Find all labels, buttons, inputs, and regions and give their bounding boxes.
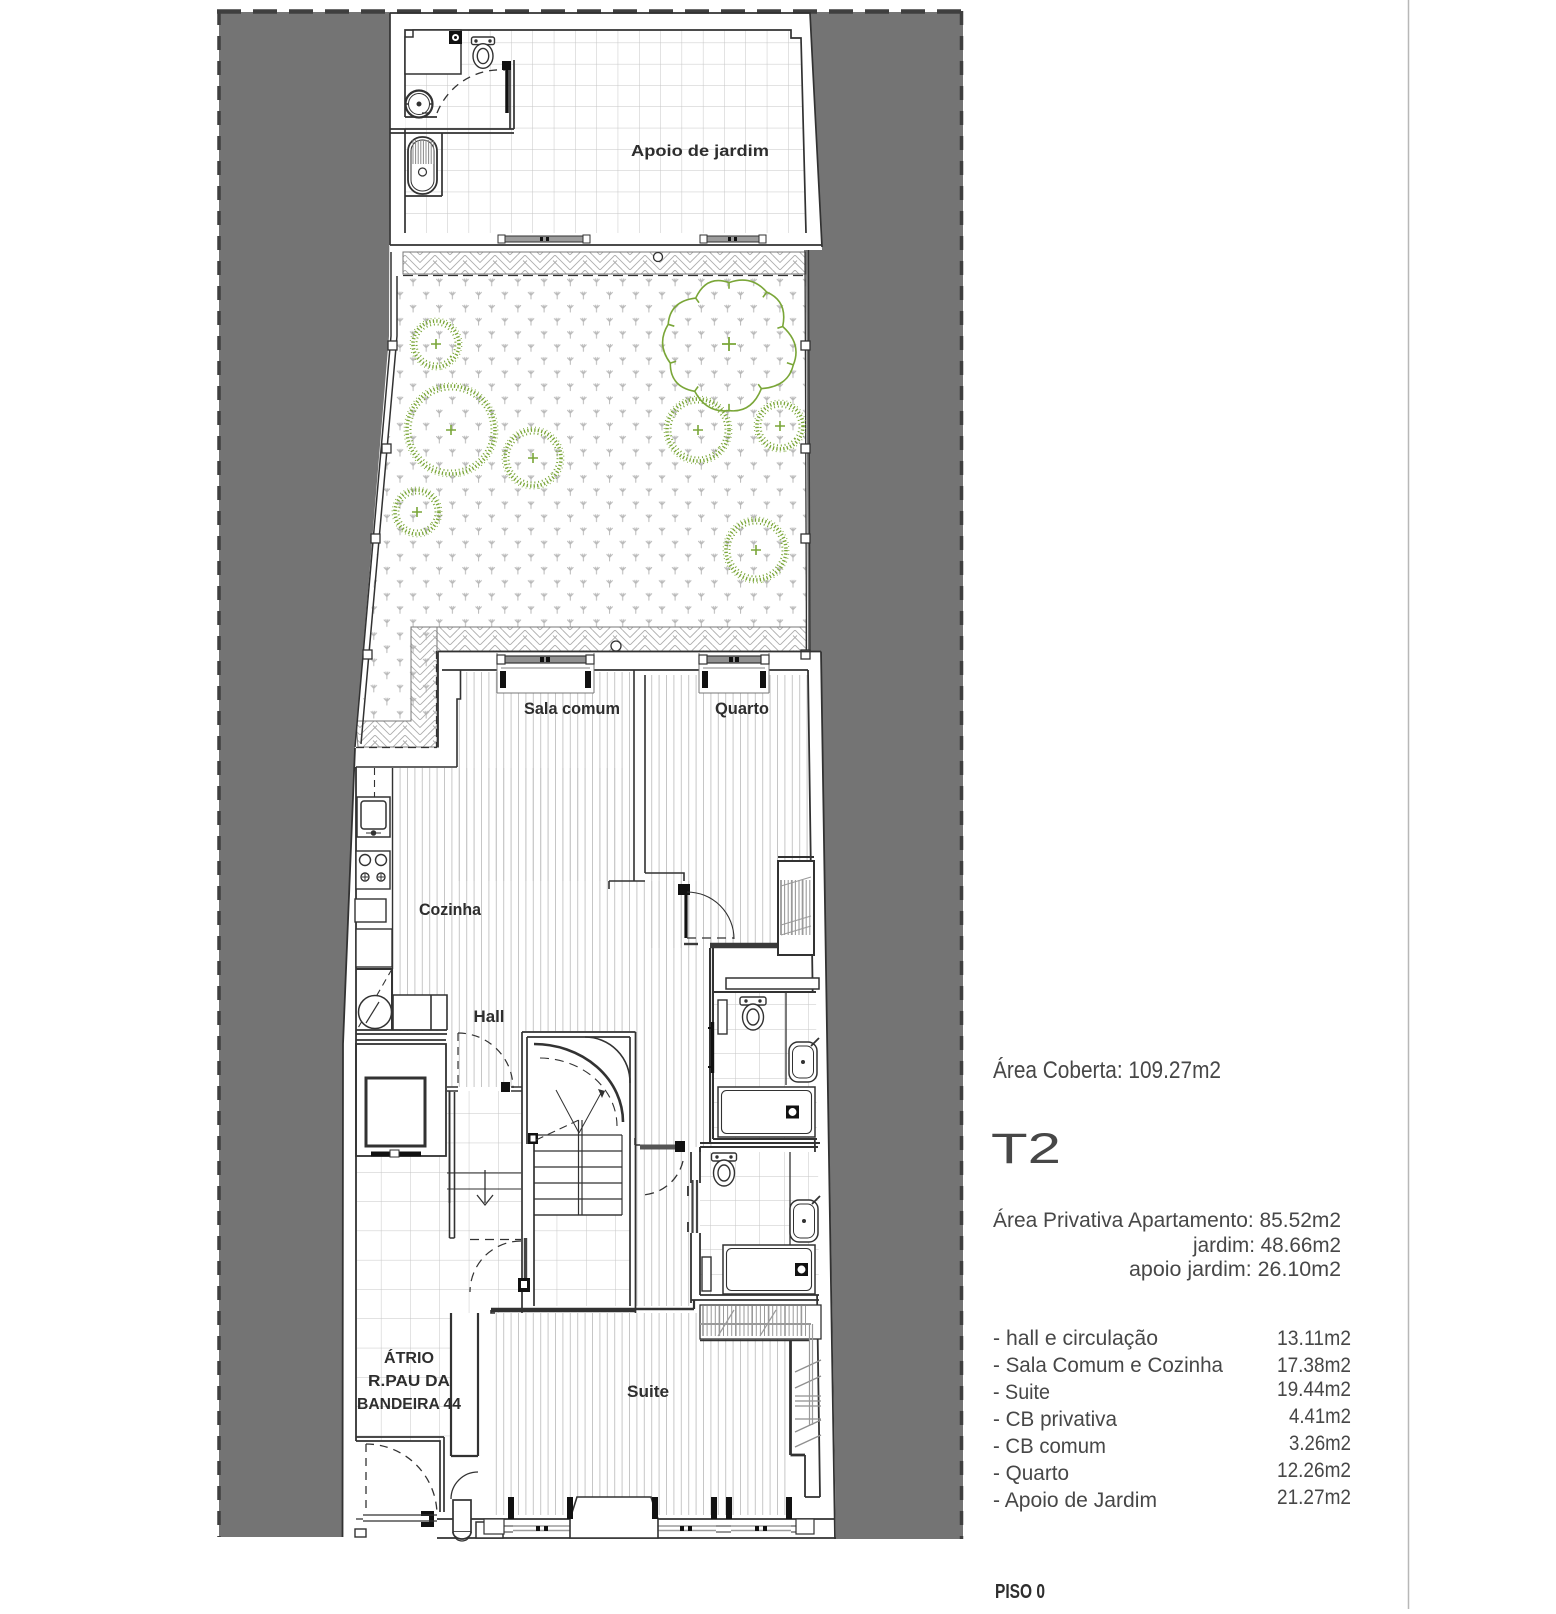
svg-text:19.44m2: 19.44m2 (1277, 1378, 1351, 1401)
svg-text:ÁTRIO: ÁTRIO (384, 1350, 434, 1367)
svg-text:- Apoio de Jardim: - Apoio de Jardim (993, 1489, 1157, 1512)
svg-text:Cozinha: Cozinha (419, 901, 482, 919)
svg-text:Hall: Hall (474, 1008, 505, 1026)
svg-text:- CB privativa: - CB privativa (993, 1408, 1117, 1431)
svg-text:BANDEIRA 44: BANDEIRA 44 (357, 1396, 461, 1413)
svg-text:apoio jardim: 26.10m2: apoio jardim: 26.10m2 (1129, 1258, 1341, 1281)
svg-text:- Suite: - Suite (993, 1381, 1050, 1404)
svg-text:Suite: Suite (627, 1383, 669, 1401)
svg-text:T2: T2 (991, 1125, 1061, 1173)
svg-text:Quarto: Quarto (715, 700, 769, 718)
svg-text:R.PAU DA: R.PAU DA (368, 1373, 450, 1390)
svg-text:- hall e circulação: - hall e circulação (993, 1327, 1158, 1350)
svg-text:4.41m2: 4.41m2 (1289, 1405, 1351, 1428)
svg-text:- Quarto: - Quarto (993, 1462, 1069, 1485)
svg-text:17.38m2: 17.38m2 (1277, 1354, 1351, 1377)
svg-text:- CB comum: - CB comum (993, 1435, 1106, 1458)
svg-text:Área Coberta: 109.27m2: Área Coberta: 109.27m2 (993, 1057, 1221, 1084)
svg-text:- Sala Comum e Cozinha: - Sala Comum e Cozinha (993, 1354, 1223, 1377)
svg-text:jardim: 48.66m2: jardim: 48.66m2 (1192, 1234, 1341, 1257)
svg-text:Área Privativa Apartamento: 85: Área Privativa Apartamento: 85.52m2 (993, 1209, 1341, 1232)
svg-text:21.27m2: 21.27m2 (1277, 1486, 1351, 1509)
svg-text:3.26m2: 3.26m2 (1289, 1432, 1351, 1455)
svg-text:13.11m2: 13.11m2 (1277, 1327, 1351, 1350)
svg-text:12.26m2: 12.26m2 (1277, 1459, 1351, 1482)
svg-text:PISO 0: PISO 0 (995, 1581, 1045, 1603)
svg-text:Sala comum: Sala comum (524, 700, 620, 718)
svg-text:Apoio de jardim: Apoio de jardim (631, 143, 769, 160)
